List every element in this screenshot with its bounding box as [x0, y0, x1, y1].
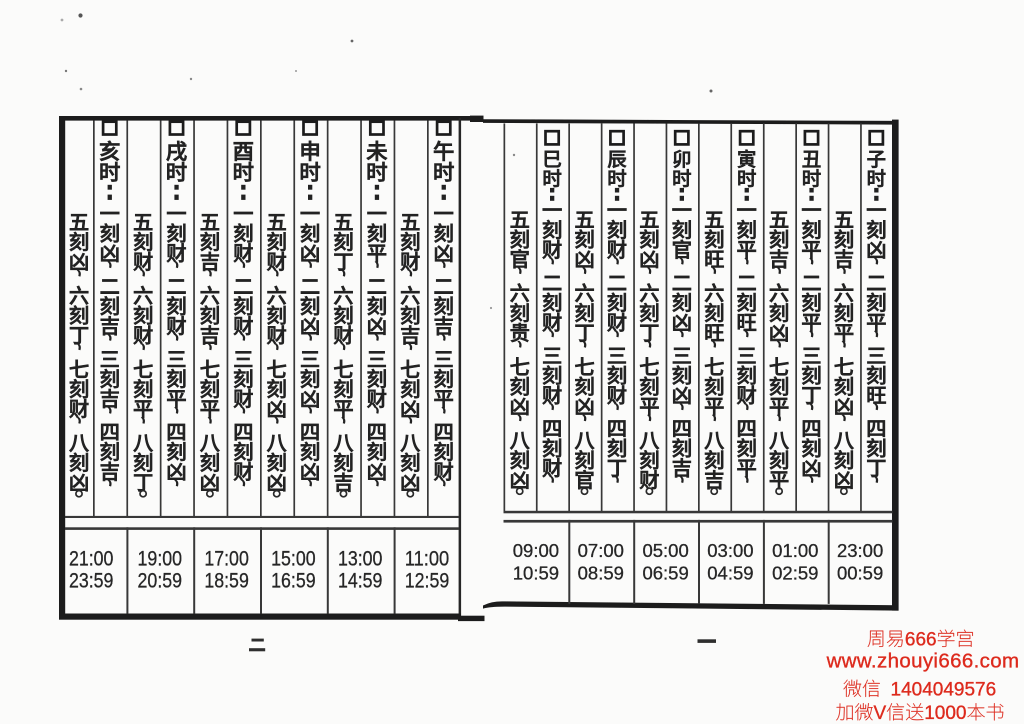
svg-text:04:59: 04:59	[707, 563, 753, 584]
svg-text:00:59: 00:59	[837, 563, 883, 584]
svg-text:18:59: 18:59	[204, 570, 249, 593]
svg-text:09:00: 09:00	[513, 540, 559, 561]
svg-text:01:00: 01:00	[772, 540, 818, 561]
svg-text:1000: 1000	[924, 703, 966, 724]
svg-text:02:59: 02:59	[772, 563, 818, 584]
svg-text:11:00: 11:00	[405, 548, 450, 571]
svg-text:21:00: 21:00	[69, 548, 114, 571]
svg-text:V: V	[874, 703, 887, 724]
svg-text:03:00: 03:00	[707, 540, 753, 561]
svg-text:23:59: 23:59	[69, 570, 114, 593]
svg-text:1404049576: 1404049576	[891, 680, 997, 701]
svg-text:13:00: 13:00	[338, 548, 383, 571]
svg-text:17:00: 17:00	[204, 548, 249, 571]
svg-text:10:59: 10:59	[513, 563, 559, 584]
svg-text:666: 666	[905, 630, 937, 651]
svg-text:14:59: 14:59	[338, 570, 383, 593]
svg-text:08:59: 08:59	[578, 563, 624, 584]
svg-text:15:00: 15:00	[271, 548, 316, 571]
svg-text:19:00: 19:00	[138, 548, 183, 571]
svg-text:16:59: 16:59	[271, 570, 316, 593]
svg-text:05:00: 05:00	[642, 540, 688, 561]
svg-text:20:59: 20:59	[138, 570, 183, 593]
svg-text:www.zhouyi666.com: www.zhouyi666.com	[826, 650, 1020, 673]
svg-text:06:59: 06:59	[642, 563, 688, 584]
svg-text:23:00: 23:00	[837, 540, 883, 561]
svg-text:07:00: 07:00	[578, 540, 624, 561]
svg-text:12:59: 12:59	[405, 570, 450, 593]
